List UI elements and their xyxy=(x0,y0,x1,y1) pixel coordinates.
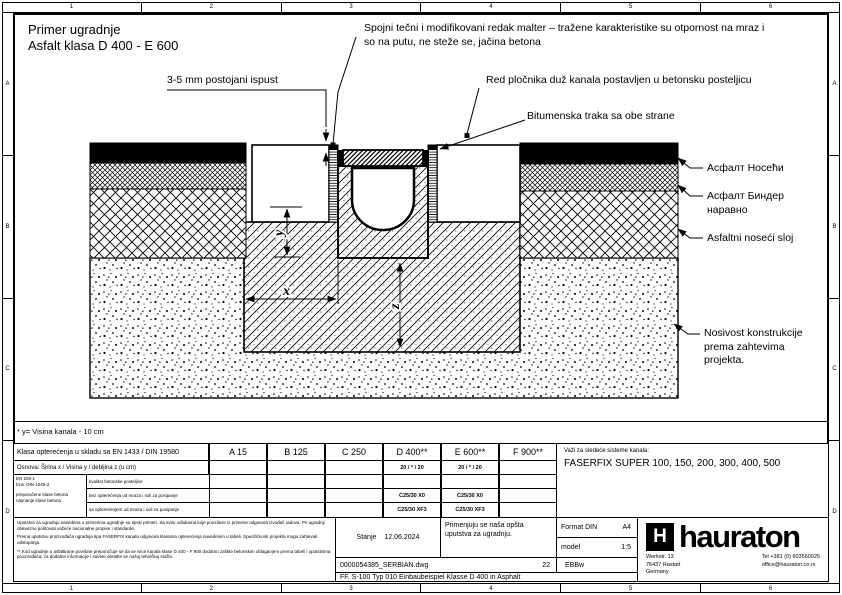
scale-cell: model 1:5 xyxy=(556,537,638,558)
disclaimer-paragraph3: ** Kod ugradnje u asfaltirane površine p… xyxy=(17,549,332,560)
table-cell-empty xyxy=(499,460,557,475)
installation-note-cell: Primenjuju se naša opšta uputstva za ugr… xyxy=(440,517,557,558)
table-row2-label: bez opterećenja od mraza i soli za posip… xyxy=(86,488,210,503)
asphalt-binder-line2: наравно xyxy=(707,204,784,218)
table-cell-empty xyxy=(499,488,557,503)
scale-label: model xyxy=(561,544,580,551)
asphalt-base-label: Asfaltni noseći sloj xyxy=(707,232,793,246)
bitumen-annotation: Bitumenska traka sa obe strane xyxy=(527,110,675,124)
mortar-annotation: Spojni tečni i modifikovani redak malter… xyxy=(364,22,764,49)
table-cell-empty xyxy=(209,488,267,503)
table-cell-empty xyxy=(325,488,383,503)
paving-annotation: Red pločnika duž kanala postavljen u bet… xyxy=(486,74,752,88)
brand-address: Werkstr. 13 76437 Rastatt Germany xyxy=(646,554,680,577)
table-class-d400: D 400** xyxy=(383,443,441,461)
ruler-col-label: 2 xyxy=(141,584,281,593)
ruler-row-label: D xyxy=(2,440,13,583)
table-row1-label: kvalitet betonske posteljice xyxy=(86,474,210,489)
ruler-col-label: 4 xyxy=(420,584,560,593)
table-class-e600: E 600** xyxy=(441,443,499,461)
file-name: 0000054385_SERBIAN.dwg xyxy=(340,562,428,569)
table-cell-empty xyxy=(325,502,383,518)
bottom-ruler: 1 2 3 4 5 6 xyxy=(2,583,840,593)
channel-interior xyxy=(352,168,414,230)
status-cell: Stanje 12.06.2024 xyxy=(335,517,441,558)
disclaimer-paragraph1: Uputstva za ugradnju navedena u primerim… xyxy=(17,520,332,531)
disclaimer-paragraph2: Prema uputstvu proizvođača ugradnja tipa… xyxy=(17,534,332,545)
bearing-capacity-label: Nosivost konstrukcije prema zahtevima pr… xyxy=(704,327,803,368)
sheet-number: 22 xyxy=(542,562,550,569)
mortar-annotation-line1: Spojni tečni i modifikovani redak malter… xyxy=(364,22,764,36)
status-label: Stanje xyxy=(357,534,377,541)
ruler-col-label: 6 xyxy=(700,584,840,593)
table-row3-label: sa opterećenjem od mraza i soli za posip… xyxy=(86,502,210,518)
drawing-id-cell: FF. S-100 Typ 010 Einbaubeispiel Klasse … xyxy=(335,572,638,582)
ruler-col-label: 1 xyxy=(2,584,141,593)
hauraton-logo-icon: H xyxy=(646,523,674,551)
table-cell-empty xyxy=(267,474,325,489)
valid-systems-cell: Važi za sledeće sisteme kanala: FASERFIX… xyxy=(556,443,829,518)
table-cell-empty xyxy=(209,502,267,518)
ruler-row-label: D xyxy=(829,440,840,583)
bitumen-strip-right xyxy=(428,145,437,222)
table-class-f900: F 900** xyxy=(499,443,557,461)
norm-line4: najmanje klase betona xyxy=(16,498,84,504)
installation-note-line1: Primenjuju se naša opšta xyxy=(445,521,552,530)
format-cell: Format DIN A4 xyxy=(556,517,638,538)
paving-slab-left xyxy=(252,145,329,222)
footnote-divider xyxy=(13,421,829,422)
table-load-class-label: Klasa opterećenja u skladu sa EN 1433 / … xyxy=(13,443,209,461)
drawing-title-line2: Asfalt klasa D 400 - E 600 xyxy=(28,38,178,54)
format-label: Format DIN xyxy=(561,524,597,531)
installation-note-line2: uputstva za ugradnju. xyxy=(445,530,552,539)
table-cell-empty xyxy=(499,474,557,489)
table-class-a15: A 15 xyxy=(209,443,267,461)
asphalt-layers-left xyxy=(90,143,246,258)
drawing-title-line1: Primer ugradnje xyxy=(28,22,178,38)
hauraton-wordmark: hauraton xyxy=(679,521,800,552)
scale-value: 1:5 xyxy=(621,544,631,551)
mortar-annotation-line2: so na putu, ne steže se, jačina betona xyxy=(364,36,764,50)
table-concrete-e600-x0: C25/30 X0 xyxy=(441,488,499,503)
table-cell-empty xyxy=(325,460,383,475)
table-cell-empty xyxy=(267,502,325,518)
table-class-c250: C 250 xyxy=(325,443,383,461)
asphalt-binder-label: Асфалт Биндер наравно xyxy=(707,190,784,217)
format-value: A4 xyxy=(622,524,631,531)
table-cell-empty xyxy=(209,460,267,475)
table-concrete-d400-xf3: C25/30 XF3 xyxy=(383,502,441,518)
table-cell-empty xyxy=(441,474,499,489)
brand-contact: Tel +381 (0) 603560025 office@hauraton.c… xyxy=(762,554,820,577)
brand-address-line3: Germany xyxy=(646,569,680,577)
brand-address-line2: 76437 Rastatt xyxy=(646,562,680,570)
bearing-line3: projekta. xyxy=(704,354,803,368)
brand-cell: H hauraton Werkstr. 13 76437 Rastatt Ger… xyxy=(637,517,829,582)
table-foundation-d400: 20 / * / 20 xyxy=(383,460,441,475)
ruler-col-label: 5 xyxy=(560,584,700,593)
drawing-title-block: Primer ugradnje Asfalt klasa D 400 - E 6… xyxy=(28,22,178,54)
dim-x-label: x xyxy=(282,284,290,299)
table-cell-empty xyxy=(325,474,383,489)
table-foundation-label: Osnova: Širina x / Visina y / debljina z… xyxy=(13,460,209,475)
dim-z-label: z xyxy=(388,303,403,310)
bitumen-strip-left xyxy=(329,145,338,222)
disclaimer-cell: Uputstva za ugradnju navedena u primerim… xyxy=(13,517,336,582)
table-concrete-d400-x0: C25/30 X0 xyxy=(383,488,441,503)
table-norm-cell: EN 206-1 bzw. DIN 1045-2 preporučene kla… xyxy=(13,474,87,518)
status-date: 12.06.2024 xyxy=(384,534,419,541)
table-cell-empty xyxy=(383,474,441,489)
brand-email: office@hauraton.co.rs xyxy=(762,562,820,570)
table-foundation-e600: 20 / * / 20 xyxy=(441,460,499,475)
grating xyxy=(337,150,429,166)
table-cell-empty xyxy=(499,502,557,518)
asphalt-layers-right xyxy=(520,143,678,258)
footnote: * y= Visina kanala - 10 cm xyxy=(17,427,104,436)
table-cell-empty xyxy=(267,460,325,475)
valid-systems-label: Važi za sledeće sisteme kanala: xyxy=(564,448,821,454)
table-class-b125: B 125 xyxy=(267,443,325,461)
table-concrete-e600-xf3: C25/30 XF3 xyxy=(441,502,499,518)
ruler-col-label: 3 xyxy=(281,584,421,593)
file-cell: 0000054385_SERBIAN.dwg 22 xyxy=(335,557,557,573)
code-cell: EBBw xyxy=(556,557,638,573)
brand-phone: Tel +381 (0) 603560025 xyxy=(762,554,820,562)
valid-systems-list: FASERFIX SUPER 100, 150, 200, 300, 400, … xyxy=(564,458,821,469)
asphalt-binder-line1: Асфалт Биндер xyxy=(707,190,784,204)
table-cell-empty xyxy=(209,474,267,489)
dim-y-label: y xyxy=(272,229,287,238)
asphalt-wear-label: Асфалт Носећи xyxy=(707,162,784,176)
technical-drawing-sheet: 1 2 3 4 5 6 1 2 3 4 5 6 A B C D A B C D xyxy=(0,0,842,595)
paving-slab-right xyxy=(437,145,520,222)
gap-annotation: 3-5 mm postojani ispust xyxy=(167,74,278,88)
brand-address-line1: Werkstr. 13 xyxy=(646,554,680,562)
channel-body xyxy=(338,166,428,258)
bearing-line2: prema zahtevima xyxy=(704,341,803,355)
table-cell-empty xyxy=(267,488,325,503)
bearing-line1: Nosivost konstrukcije xyxy=(704,327,803,341)
